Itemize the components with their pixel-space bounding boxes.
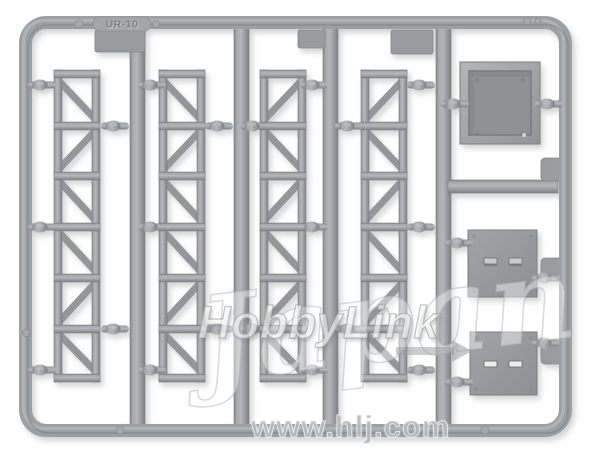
truss-girder-part-4 — [361, 70, 407, 382]
truss-girder-part-3 — [260, 70, 306, 382]
horizontal-runner-branch — [448, 180, 558, 193]
plate-part-lower — [470, 332, 537, 395]
sprue-code-plaque: UR-10 — [93, 17, 151, 31]
gate — [205, 324, 233, 335]
gate — [205, 121, 233, 132]
truss-girder-part-1 — [54, 70, 100, 382]
box-base-part — [460, 62, 540, 144]
gate — [335, 324, 363, 335]
plate-part-upper — [468, 230, 537, 297]
gate — [407, 80, 435, 91]
gate — [28, 365, 56, 376]
sprue-code-text: UR-10 — [106, 19, 139, 31]
gate — [28, 80, 56, 91]
plastic-sprue: UR-10 — [0, 0, 600, 450]
truss-girder-part-2 — [159, 70, 205, 382]
gate — [407, 222, 435, 233]
gate — [101, 121, 129, 132]
sprue-product-photo: UR-10 — [0, 0, 600, 450]
gate — [407, 365, 435, 376]
gate — [101, 324, 129, 335]
gate — [335, 121, 363, 132]
gate — [28, 222, 56, 233]
